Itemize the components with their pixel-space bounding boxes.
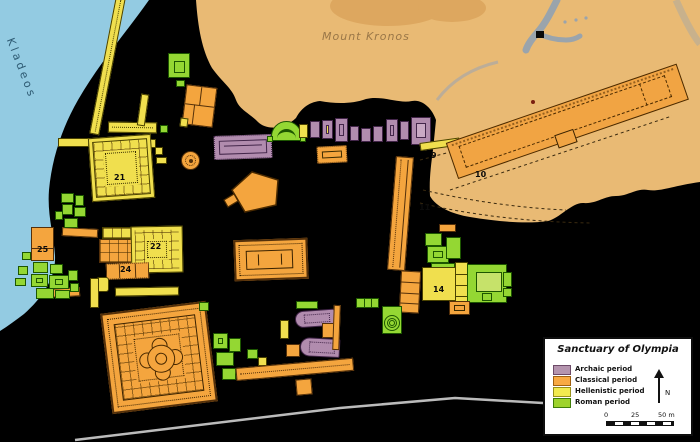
kladeos-baths: [33, 262, 48, 273]
map-number-21: 21: [114, 173, 125, 182]
theokoleon: [99, 239, 132, 263]
kladeos-baths: [31, 274, 48, 287]
kladeos-baths: [50, 264, 63, 274]
southwest-baths: [199, 302, 209, 311]
legend-label-archaic: Archaic period: [575, 365, 632, 373]
map-number-22: 22: [150, 242, 161, 251]
southwest-baths: [213, 333, 228, 349]
map-number-10: 10: [475, 170, 486, 179]
bath-room: [55, 211, 63, 220]
map-number-14: 14: [433, 285, 444, 294]
legend-title: Sanctuary of Olympia: [545, 344, 691, 355]
theokoleon-annex: [102, 227, 132, 239]
southwest-baths: [222, 368, 236, 380]
southeast-building: [399, 271, 421, 314]
roman-building: [503, 288, 512, 297]
wall-fragment: [58, 138, 89, 147]
south-wall: [115, 286, 179, 296]
bath-room: [64, 218, 78, 228]
treasury: [361, 128, 371, 142]
roman-peristyle-house: [467, 264, 507, 303]
map-number-25: 25: [37, 245, 48, 254]
roman-building: [503, 272, 512, 287]
metroon: [317, 145, 348, 164]
map-number-24: 24: [120, 265, 131, 274]
wall-fragment: [90, 278, 99, 308]
ruin-fragment: [286, 344, 300, 357]
bath-room: [61, 193, 74, 203]
kladeos-baths: [49, 275, 69, 289]
treasury: [373, 126, 383, 142]
treasury: [386, 119, 398, 142]
ruin-fragment: [155, 147, 163, 155]
roman-fountain-house: [382, 306, 402, 334]
legend-label-hellenistic: Hellenistic period: [575, 387, 644, 395]
scale-end: 50 m: [658, 411, 675, 419]
kladeos-baths: [36, 288, 54, 299]
south-stoa-wing: [295, 378, 312, 395]
olympia-site-map: Kladeos Mount Kronos: [0, 0, 700, 442]
legend-swatch-classical: [553, 376, 571, 386]
ruin-fragment: [280, 320, 289, 339]
bath-room: [74, 207, 86, 217]
wall-fragment: [62, 227, 98, 238]
heroon: [168, 53, 190, 78]
roman-annex: [449, 301, 470, 315]
leonidaion: [100, 301, 218, 414]
north-arrow-icon: [654, 369, 664, 378]
bath-room: [15, 278, 26, 286]
ruin-fragment: [439, 224, 456, 232]
palaestra: [88, 134, 155, 202]
bath-room: [22, 252, 31, 260]
legend-label-classical: Classical period: [575, 376, 637, 384]
treasury: [400, 121, 409, 140]
bath-room: [62, 204, 73, 215]
ruin-fragment: [160, 125, 168, 133]
scale-mid: 25: [631, 411, 639, 419]
scale-bar: [606, 421, 674, 426]
southwest-baths: [216, 352, 234, 366]
heroon-annex: [176, 80, 185, 87]
legend-label-roman: Roman period: [575, 398, 630, 406]
exedra-wing: [267, 136, 273, 142]
roman-building: [425, 233, 442, 246]
legend-swatch-hellenistic: [553, 387, 571, 397]
bath-room: [75, 195, 84, 206]
pelopion: [232, 172, 278, 212]
kladeos-baths: [55, 290, 70, 299]
roman-building: [356, 298, 379, 308]
legend-swatch-roman: [553, 398, 571, 408]
roman-building: [446, 237, 461, 259]
scale-zero: 0: [604, 411, 608, 419]
kladeos-baths: [70, 283, 79, 292]
north-building-annex: [179, 118, 188, 128]
temple-of-zeus: [233, 238, 308, 282]
treasury: [335, 118, 348, 142]
building-25: [31, 227, 54, 261]
gymnasium-south-wall: [108, 122, 157, 134]
kladeos-baths: [68, 270, 78, 281]
treasury: [310, 121, 320, 138]
north-label: N: [665, 389, 670, 397]
hill-marker: [531, 100, 535, 104]
bath-room: [18, 266, 28, 275]
southwest-baths: [229, 338, 241, 352]
north-arrow-line: [658, 378, 660, 403]
mountain-label: Mount Kronos: [322, 30, 410, 43]
map-number-11: 11: [419, 203, 430, 212]
philippeion: [181, 151, 200, 170]
building-14: [422, 267, 456, 301]
treasury: [322, 120, 333, 139]
treasury: [299, 124, 308, 138]
treasury: [350, 126, 359, 141]
southwest-baths: [247, 349, 258, 359]
hill-structure: [536, 31, 544, 38]
roman-building: [296, 301, 318, 309]
map-number-9: 9: [431, 151, 437, 160]
legend-box: Sanctuary of Olympia Archaic period Clas…: [543, 337, 693, 436]
temple-of-hera: [214, 134, 273, 160]
ruin-fragment: [156, 157, 167, 164]
legend-swatch-archaic: [553, 365, 571, 375]
